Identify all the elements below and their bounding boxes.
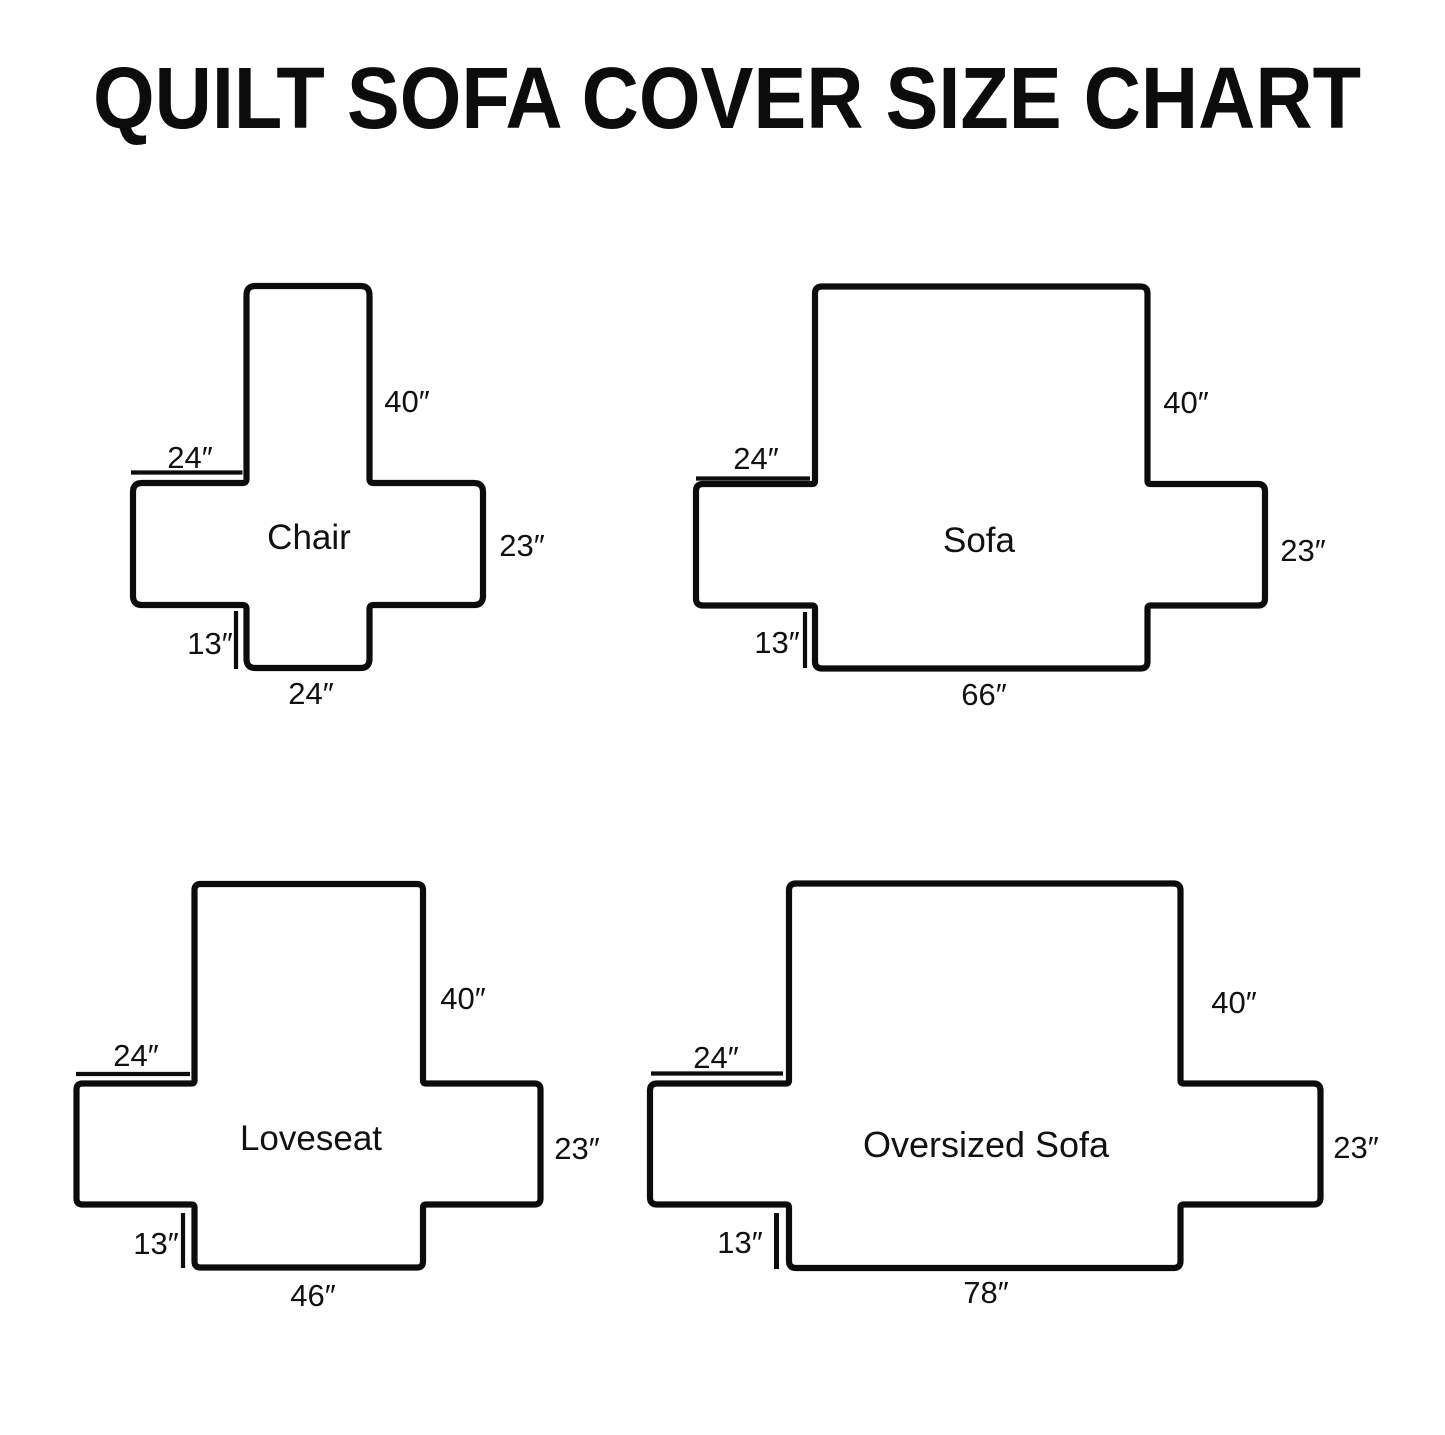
svg-text:66″: 66″	[961, 677, 1006, 712]
svg-text:13″: 13″	[754, 625, 799, 660]
svg-text:23″: 23″	[1333, 1130, 1378, 1165]
svg-text:23″: 23″	[1280, 533, 1325, 568]
svg-text:24″: 24″	[288, 676, 333, 711]
svg-text:13″: 13″	[717, 1225, 762, 1260]
svg-text:24″: 24″	[693, 1040, 738, 1075]
svg-text:13″: 13″	[187, 626, 232, 661]
svg-text:Chair: Chair	[267, 518, 351, 557]
svg-text:Oversized Sofa: Oversized Sofa	[863, 1124, 1110, 1165]
svg-text:78″: 78″	[963, 1275, 1008, 1310]
svg-text:46″: 46″	[290, 1278, 335, 1313]
svg-text:40″: 40″	[1211, 985, 1256, 1020]
svg-text:13″: 13″	[133, 1226, 178, 1261]
svg-text:24″: 24″	[167, 440, 212, 475]
svg-text:23″: 23″	[499, 528, 544, 563]
svg-text:40″: 40″	[1163, 385, 1208, 420]
svg-text:Loveseat: Loveseat	[240, 1119, 382, 1158]
svg-text:QUILT SOFA COVER SIZE CHART: QUILT SOFA COVER SIZE CHART	[93, 50, 1361, 147]
svg-text:23″: 23″	[554, 1131, 599, 1166]
svg-text:Sofa: Sofa	[943, 521, 1016, 560]
svg-text:40″: 40″	[440, 981, 485, 1016]
svg-text:40″: 40″	[384, 384, 429, 419]
svg-text:24″: 24″	[733, 441, 778, 476]
svg-text:24″: 24″	[113, 1038, 158, 1073]
